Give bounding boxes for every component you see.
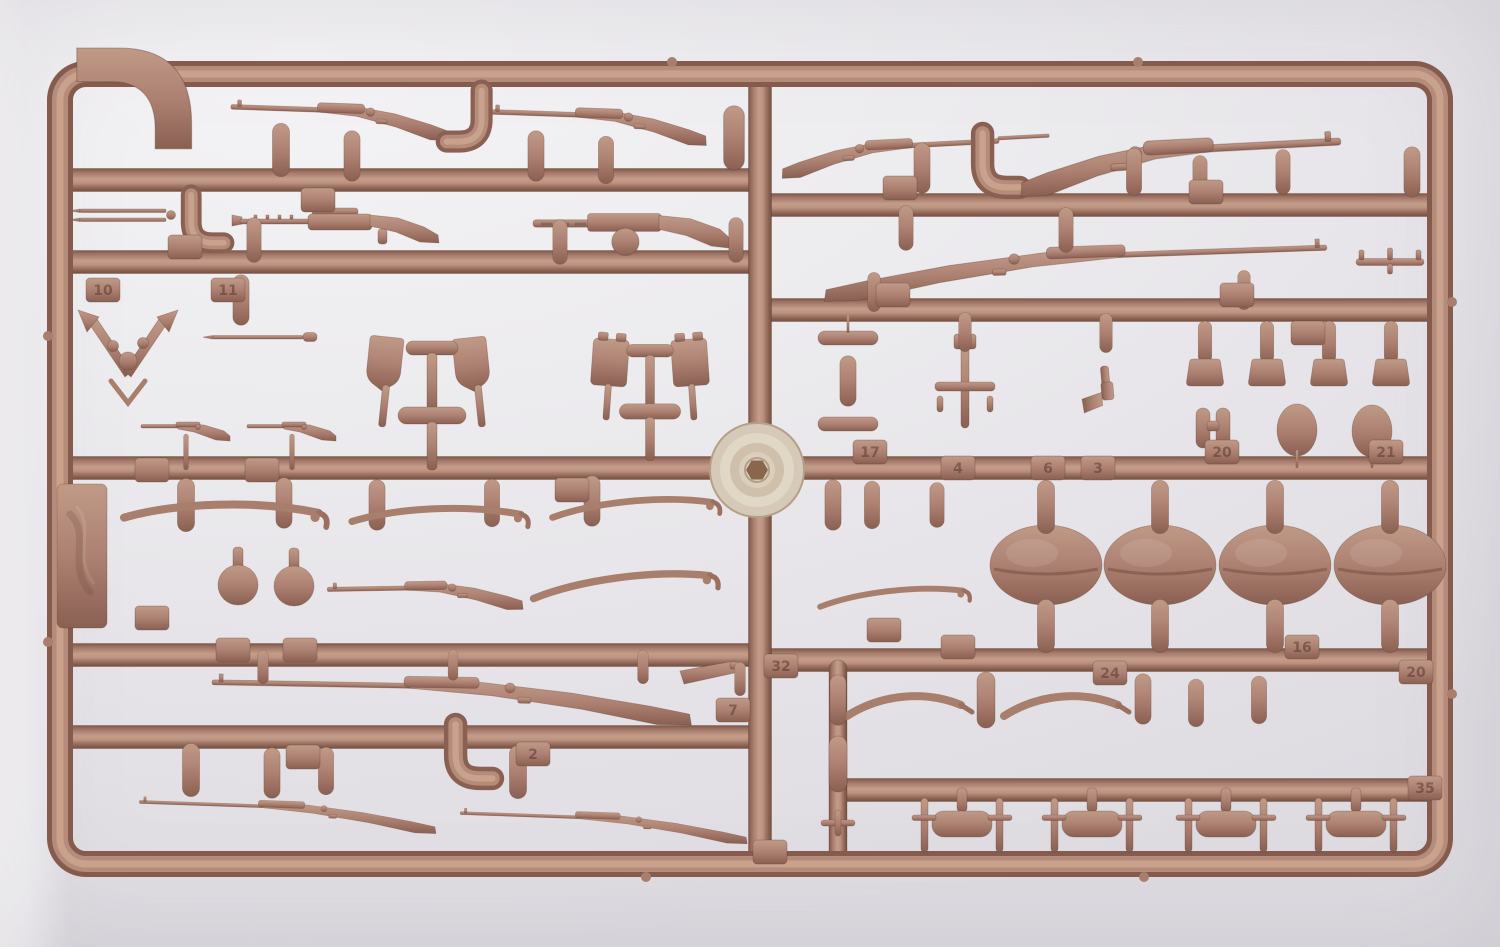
ejector-nub <box>667 57 677 67</box>
part-number-label: 11 <box>218 283 237 299</box>
capsule-part <box>1276 150 1290 195</box>
part-number-tag <box>753 840 787 864</box>
capsule-part <box>638 650 649 684</box>
capsule-part <box>369 480 385 530</box>
capsule-part <box>977 672 995 728</box>
capsule-part <box>258 650 269 684</box>
capsule-part <box>864 481 879 529</box>
ejector-nub <box>641 872 651 882</box>
longrifle-part <box>139 796 437 834</box>
saber-part <box>124 500 327 527</box>
bay2-part <box>70 209 176 222</box>
part-number-tag <box>245 458 279 482</box>
ejector-nub <box>43 637 53 647</box>
mg-part <box>232 208 439 244</box>
ovalsmall-part <box>1277 404 1317 456</box>
capsule-part <box>1100 313 1113 352</box>
sprue-runner <box>758 194 1440 217</box>
part-number-label: 20 <box>1212 445 1232 461</box>
stem-part <box>184 434 189 470</box>
molding-disc <box>710 423 804 517</box>
pistol-part <box>1079 365 1115 413</box>
capsule-part <box>1266 480 1283 533</box>
capsule-part <box>318 747 333 795</box>
pouch-part <box>1311 359 1348 386</box>
plate-part <box>57 484 107 628</box>
part-number-tag <box>283 638 317 662</box>
capsule-part <box>448 650 458 681</box>
part-number-label: 6 <box>1043 461 1053 477</box>
part-number-tag: 3 <box>1081 456 1115 480</box>
part-number-label: 2 <box>528 747 538 763</box>
sprue-runner <box>60 251 762 274</box>
capsule-part <box>553 220 567 265</box>
part-number-tag <box>168 235 202 259</box>
part-number-tag: 24 <box>1093 661 1127 685</box>
part-number-tag <box>876 283 910 307</box>
ejector-nub <box>1139 872 1149 882</box>
part-number-tag <box>1291 321 1325 345</box>
capsule-part <box>1059 208 1073 253</box>
part-number-tag <box>135 606 169 630</box>
ejector-nub <box>43 331 53 341</box>
grenade-part <box>218 547 258 605</box>
part-number-tag <box>941 635 975 659</box>
helmet-part <box>1334 525 1446 605</box>
capsule-part <box>1266 599 1283 652</box>
part-number-tag <box>216 638 250 662</box>
part-number-label: 3 <box>1093 461 1103 477</box>
pouch-part <box>1373 359 1410 386</box>
capsule-part <box>1126 148 1141 196</box>
capsule-part <box>1151 480 1168 533</box>
capsule-part <box>930 483 944 528</box>
capsule-part <box>959 312 972 351</box>
part-number-tag <box>301 188 335 212</box>
tincluster-part <box>588 332 712 461</box>
capsule-part <box>829 736 847 792</box>
part-number-tag <box>286 745 320 769</box>
shovelcluster-part <box>361 335 495 470</box>
ejector-nub <box>1447 689 1457 699</box>
sprue-runner <box>60 644 762 667</box>
rifle-part <box>488 105 708 146</box>
stem-part <box>847 315 849 333</box>
capsule-part <box>735 662 746 696</box>
part-number-label: 24 <box>1100 666 1120 682</box>
part-number-label: 20 <box>1406 665 1426 681</box>
part-number-tag: 20 <box>1399 660 1433 684</box>
capsule-part <box>1381 480 1398 533</box>
capsule-part <box>1151 599 1168 652</box>
capsule-part <box>1404 147 1420 197</box>
capsule-part <box>899 206 913 251</box>
part-number-label: 16 <box>1292 640 1311 656</box>
capsule-part <box>1135 674 1151 724</box>
saber-part <box>819 586 969 608</box>
capsule-part <box>1037 480 1054 533</box>
capsule-part <box>825 480 841 530</box>
vpart-part <box>78 310 178 403</box>
stem-part <box>1296 450 1298 468</box>
capsule-part <box>729 218 743 263</box>
capsule-part <box>1381 599 1398 652</box>
tinycross-part <box>821 810 855 836</box>
part-number-label: 17 <box>860 445 879 461</box>
sprue-runner <box>758 299 1440 322</box>
saber-part <box>532 570 718 601</box>
part-number-tag: 10 <box>86 278 120 302</box>
capsule-part <box>1198 321 1212 363</box>
capsule-part <box>724 106 745 170</box>
part-number-tag <box>555 478 589 502</box>
part-number-tag: 2 <box>516 742 550 766</box>
capsule-part <box>344 131 360 181</box>
sabershort-part <box>847 696 972 716</box>
helmet-part <box>1104 525 1216 605</box>
rifle-part <box>327 580 523 613</box>
capsule-part <box>1251 676 1266 724</box>
sprue-drawing: 1011721746320213224162035 <box>0 0 1500 947</box>
jcurve-part <box>447 91 482 142</box>
part-number-label: 35 <box>1415 781 1434 797</box>
stem-part <box>290 434 295 470</box>
grenade-part <box>274 548 314 606</box>
part-number-label: 32 <box>771 659 790 675</box>
helmet-part <box>990 525 1102 605</box>
part-number-tag <box>135 458 169 482</box>
part-number-tag <box>867 618 901 642</box>
ejector-nub <box>1133 57 1143 67</box>
capsule-part <box>598 136 613 184</box>
ejector-nub <box>1447 297 1457 307</box>
part-number-tag: 4 <box>941 456 975 480</box>
sprue-runner <box>60 726 762 749</box>
part-number-tag <box>1189 180 1223 204</box>
capsule-part <box>840 356 856 406</box>
capsule-part <box>1188 679 1203 727</box>
capsule-part <box>1037 599 1054 652</box>
capsule-part <box>272 123 289 176</box>
part-number-tag: 16 <box>1285 635 1319 659</box>
jcurve-part <box>983 133 1020 187</box>
part-number-label: 4 <box>953 461 963 477</box>
capsule-part <box>182 743 199 796</box>
capsule-part <box>247 218 261 263</box>
rifle-part <box>230 100 450 141</box>
helmet-part <box>1219 525 1331 605</box>
part-number-label: 10 <box>93 283 113 299</box>
part-number-tag: 6 <box>1031 456 1065 480</box>
sprue-photo: 1011721746320213224162035 <box>0 0 1500 947</box>
part-number-tag: 7 <box>716 698 750 722</box>
part-number-tag: 11 <box>211 278 245 302</box>
bay1-part <box>203 333 317 342</box>
part-number-tag: 32 <box>764 654 798 678</box>
part-number-tag <box>1220 283 1254 307</box>
rifle-part <box>1019 131 1343 197</box>
capsule-part <box>528 131 544 181</box>
sabershort-part <box>1004 696 1129 716</box>
part-number-tag: 20 <box>1205 440 1239 464</box>
part-number-label: 21 <box>1376 445 1395 461</box>
mag-part <box>818 417 878 431</box>
pouch-part <box>1187 359 1224 386</box>
capsule-part <box>484 479 499 527</box>
part-number-tag <box>883 176 917 200</box>
part-number-tag: 17 <box>853 440 887 464</box>
part-number-label: 7 <box>728 703 738 719</box>
capsule-part <box>1384 321 1398 363</box>
longrifle-part <box>459 807 748 843</box>
pouch-part <box>1249 359 1286 386</box>
part-number-tag: 35 <box>1408 776 1442 800</box>
sprue-runner <box>60 169 762 192</box>
part-number-tag: 21 <box>1369 440 1403 464</box>
capsule-part <box>830 675 846 725</box>
tpart-part <box>1356 248 1424 274</box>
capsule-part <box>1260 321 1274 363</box>
capsule-part <box>264 748 280 798</box>
